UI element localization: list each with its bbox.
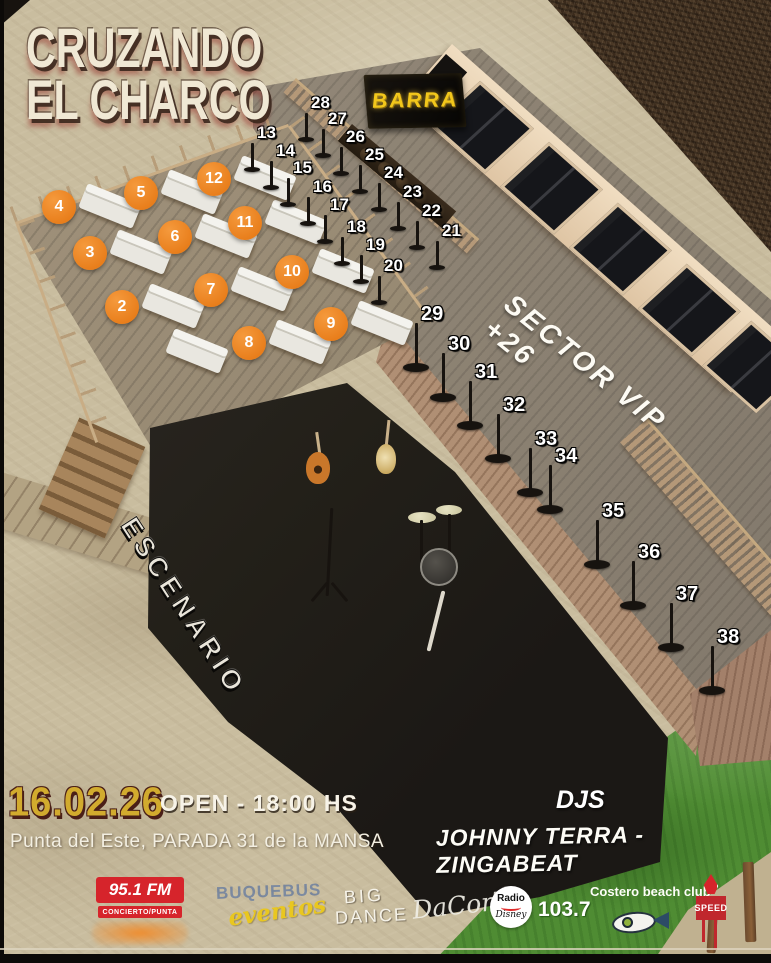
table-pole (529, 448, 532, 490)
table-pole (287, 178, 290, 204)
table-base (280, 202, 296, 207)
table-base (317, 239, 333, 244)
event-title-line1: CRUZANDO (26, 24, 271, 75)
bar-sign-label: BARRA (371, 88, 459, 113)
bottom-border (0, 954, 771, 963)
standing-table-24[interactable]: 24 (384, 163, 403, 183)
standing-table-25[interactable]: 25 (365, 145, 384, 165)
lounge-table-marker-9[interactable]: 9 (314, 307, 348, 341)
table-base (485, 454, 511, 463)
table-pole (341, 237, 344, 263)
table-pole (359, 165, 362, 191)
lounge-table-marker-10[interactable]: 10 (275, 255, 309, 289)
lounge-table-marker-5[interactable]: 5 (124, 176, 158, 210)
table-pole (324, 215, 327, 241)
standing-table-23[interactable]: 23 (403, 182, 422, 202)
radio-disney-word1: Radio (497, 894, 525, 904)
lounge-table-marker-2[interactable]: 2 (105, 290, 139, 324)
table-base (430, 393, 456, 402)
bar-sign: BARRA (364, 73, 467, 129)
venue-address: Punta del Este, PARADA 31 de la MANSA (10, 831, 384, 853)
table-base (658, 643, 684, 652)
table-pole (360, 255, 363, 281)
lounge-table-marker-6[interactable]: 6 (158, 220, 192, 254)
standing-table-16[interactable]: 16 (313, 177, 332, 197)
sponsor-radio-disney-freq: 103.7 (538, 898, 591, 922)
vip-table-31[interactable]: 31 (475, 361, 497, 384)
table-base (353, 279, 369, 284)
event-title-line2: EL CHARCO (26, 75, 271, 126)
standing-table-19[interactable]: 19 (366, 235, 385, 255)
standing-table-17[interactable]: 17 (330, 195, 349, 215)
sponsor-951fm-sub: CONCIERTO/PUNTA (98, 906, 182, 918)
bass-guitar-icon (376, 444, 396, 474)
table-pole (305, 113, 308, 139)
table-base (334, 261, 350, 266)
table-pole (632, 561, 635, 603)
table-pole (711, 646, 714, 688)
table-base (333, 171, 349, 176)
table-pole (378, 276, 381, 302)
table-pole (378, 183, 381, 209)
table-base (429, 265, 445, 270)
table-base (517, 488, 543, 497)
table-pole (340, 147, 343, 173)
standing-table-27[interactable]: 27 (328, 109, 347, 129)
table-pole (251, 143, 254, 169)
table-base (584, 560, 610, 569)
table-pole (322, 129, 325, 155)
table-base (390, 226, 406, 231)
radio-disney-word2: Disney (496, 911, 527, 920)
standing-table-18[interactable]: 18 (347, 217, 366, 237)
vip-table-35[interactable]: 35 (602, 500, 624, 523)
seating-map-poster: BARRA ESCENARIO SECTOR VIP +26 234567891… (0, 0, 771, 963)
vip-table-33[interactable]: 33 (535, 428, 557, 451)
table-base (298, 137, 314, 142)
table-base (371, 207, 387, 212)
standing-table-15[interactable]: 15 (293, 158, 312, 178)
event-title: CRUZANDO EL CHARCO (26, 24, 271, 127)
vip-table-38[interactable]: 38 (717, 626, 739, 649)
vip-table-34[interactable]: 34 (555, 445, 577, 468)
bass-drum-icon (420, 548, 458, 586)
sponsor-951fm-logo: 95.1 FM (96, 877, 184, 903)
standing-table-26[interactable]: 26 (346, 127, 365, 147)
table-base (409, 245, 425, 250)
table-pole (307, 197, 310, 223)
lounge-table-marker-12[interactable]: 12 (197, 162, 231, 196)
bottom-divider (0, 948, 771, 950)
lounge-table-marker-7[interactable]: 7 (194, 273, 228, 307)
table-pole (497, 414, 500, 456)
open-time: OPEN - 18:00 HS (160, 790, 358, 817)
table-pole (416, 221, 419, 247)
standing-table-20[interactable]: 20 (384, 256, 403, 276)
table-pole (436, 241, 439, 267)
event-date: 16.02.26 (8, 780, 164, 826)
table-base (263, 185, 279, 190)
lounge-table-marker-3[interactable]: 3 (73, 236, 107, 270)
sponsor-orange-logo (92, 921, 188, 945)
standing-table-22[interactable]: 22 (422, 201, 441, 221)
fish-icon (606, 906, 676, 936)
table-pole (469, 381, 472, 423)
table-pole (270, 161, 273, 187)
lounge-table-marker-8[interactable]: 8 (232, 326, 266, 360)
sponsor-bigdance-line2: DANCE (335, 904, 409, 929)
vip-table-29[interactable]: 29 (421, 303, 443, 326)
sponsor-radio-disney-logo: Radio Disney (490, 886, 532, 928)
table-pole (415, 323, 418, 365)
djs-names: JOHNNY TERRA - ZINGABEAT (436, 819, 771, 879)
table-base (371, 300, 387, 305)
speed-label: SPEED (696, 896, 726, 920)
speed-flame-icon (702, 874, 720, 894)
table-base (699, 686, 725, 695)
table-pole (596, 520, 599, 562)
standing-table-21[interactable]: 21 (442, 221, 461, 241)
table-base (457, 421, 483, 430)
table-pole (442, 353, 445, 395)
vip-table-32[interactable]: 32 (503, 394, 525, 417)
table-pole (549, 465, 552, 507)
table-base (537, 505, 563, 514)
lounge-table-marker-4[interactable]: 4 (42, 190, 76, 224)
vip-table-30[interactable]: 30 (448, 333, 470, 356)
vip-table-36[interactable]: 36 (638, 541, 660, 564)
acoustic-guitar-icon (306, 452, 330, 484)
sponsor-costero-logo: Costero beach club (590, 884, 711, 899)
table-base (352, 189, 368, 194)
table-base (300, 221, 316, 226)
table-pole (670, 603, 673, 645)
table-base (403, 363, 429, 372)
sponsor-speed-logo: SPEED (694, 874, 728, 944)
vip-table-37[interactable]: 37 (676, 583, 698, 606)
djs-label: DJS (556, 786, 605, 815)
table-base (244, 167, 260, 172)
lounge-table-marker-11[interactable]: 11 (228, 206, 262, 240)
left-border (0, 0, 4, 963)
table-base (620, 601, 646, 610)
table-base (315, 153, 331, 158)
table-pole (397, 202, 400, 228)
